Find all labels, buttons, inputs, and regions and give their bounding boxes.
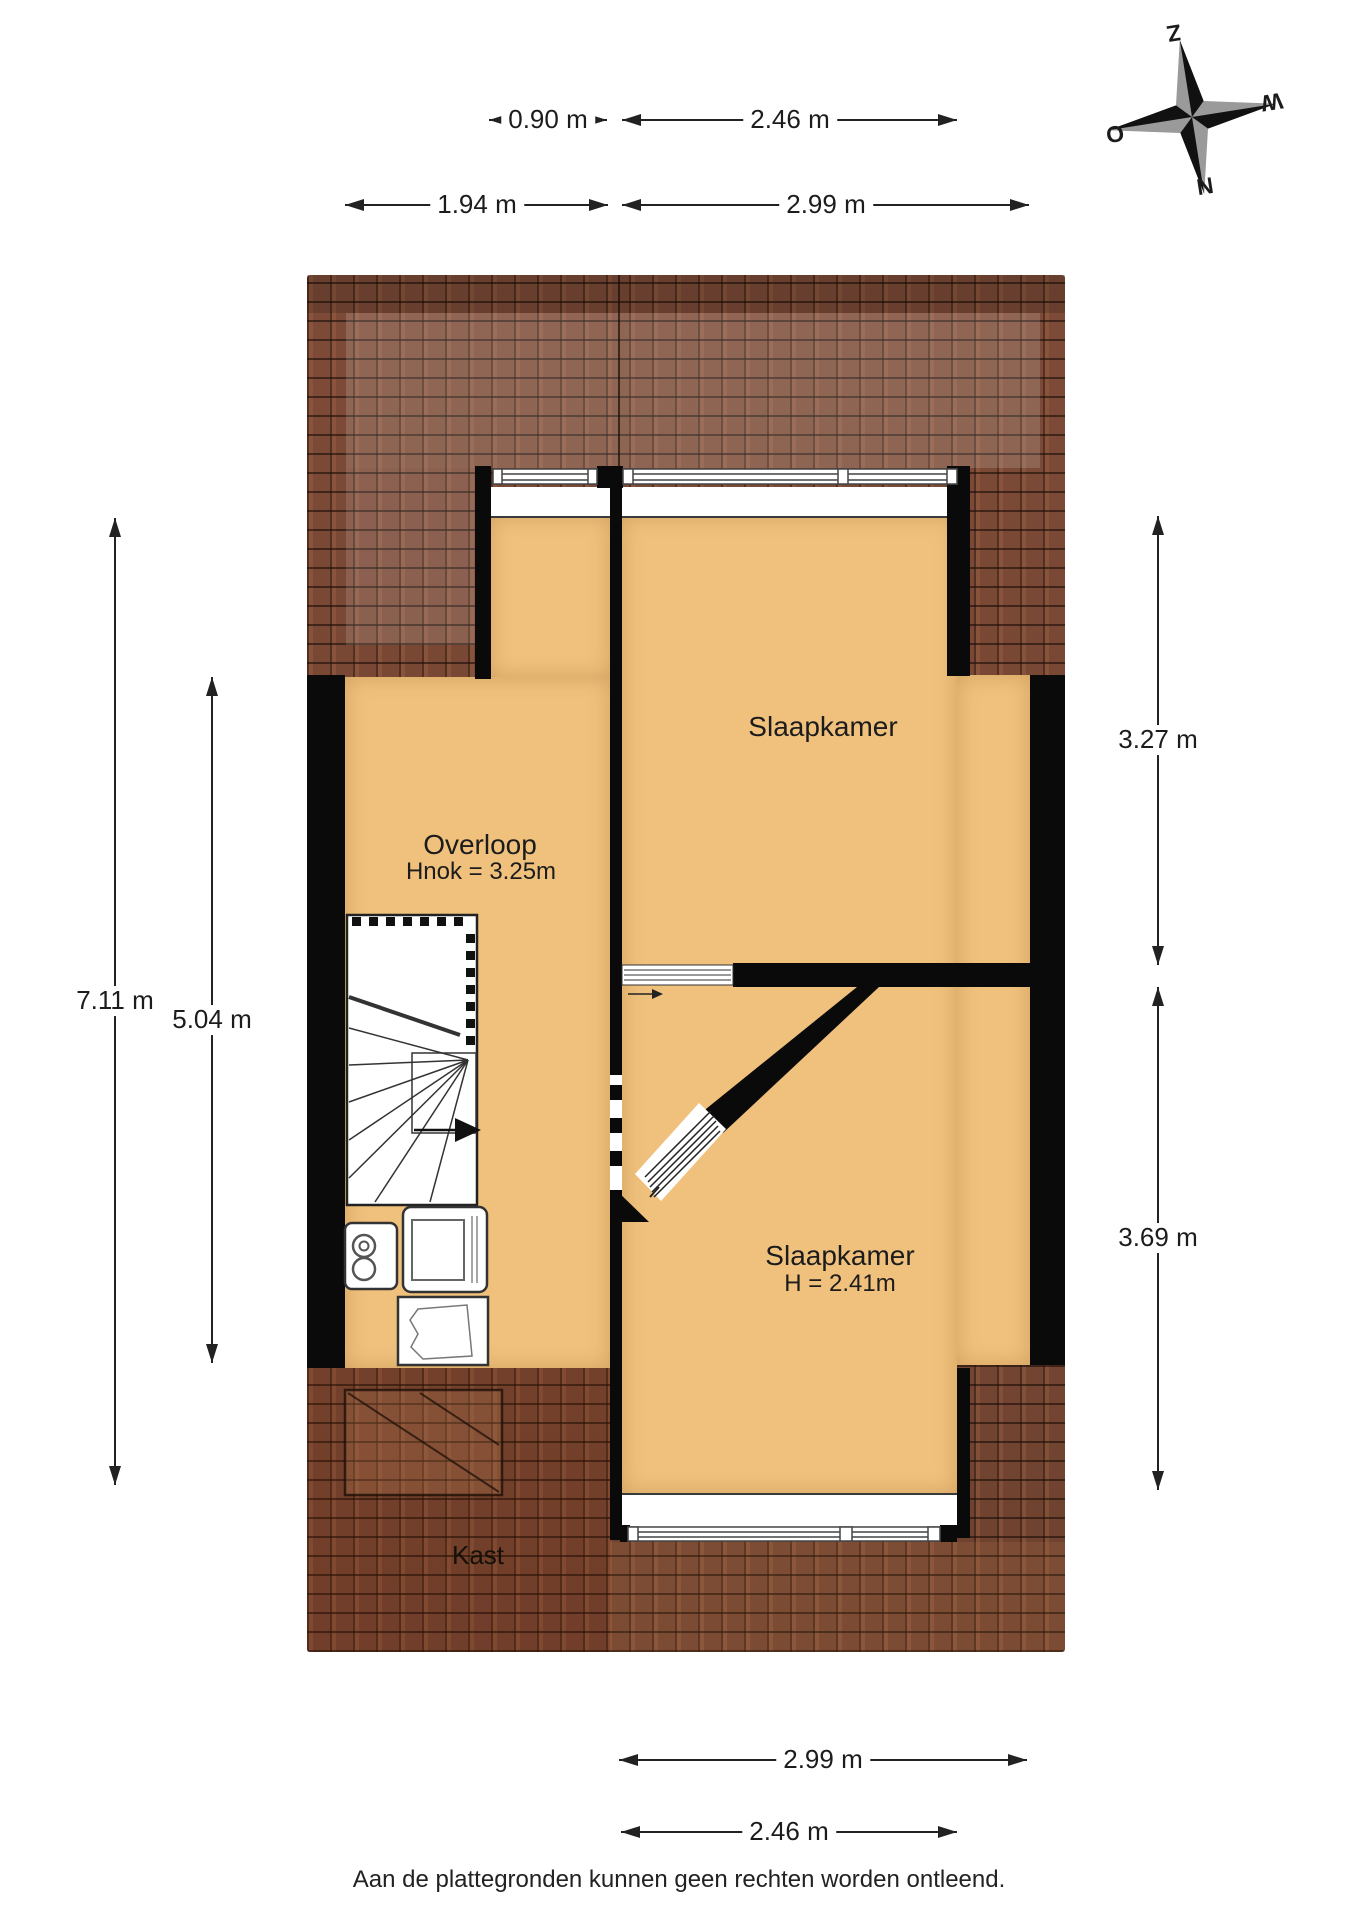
- dim-bottom-window: 2.46 m: [742, 1817, 836, 1847]
- dim-left-total: 7.11 m: [69, 986, 161, 1016]
- sink-fixture: [345, 1223, 397, 1289]
- wall-dormer-right: [947, 466, 970, 676]
- washing-machine: [403, 1207, 487, 1292]
- fixtures: [345, 1207, 488, 1365]
- wall-bedroom-divider: [733, 963, 1030, 987]
- label-bedroom-top: Slaapkamer: [748, 711, 897, 743]
- wall-exterior-left: [307, 675, 345, 1368]
- doors: [622, 965, 733, 1201]
- wall-lower-right: [957, 1368, 970, 1538]
- compass-label-west: W: [1259, 87, 1285, 117]
- dim-right-bedroom-top: 3.27 m: [1111, 725, 1205, 755]
- disclaimer-text: Aan de plattegronden kunnen geen rechten…: [353, 1866, 1006, 1894]
- door-bedroom-bottom: [635, 1103, 726, 1201]
- compass-rose: [1096, 27, 1288, 208]
- dim-top-landing-width: 1.94 m: [430, 190, 524, 220]
- floorplan-canvas: Slaapkamer Overloop Hnok = 3.25m Slaapka…: [0, 0, 1358, 1920]
- label-bedroom-bottom: Slaapkamer: [765, 1240, 914, 1272]
- wall-diagonal: [701, 987, 879, 1133]
- window-top-large: [623, 469, 957, 484]
- dim-left-landing: 5.04 m: [165, 1005, 259, 1035]
- window-top-small: [493, 469, 597, 484]
- dim-bottom-bedroom-width: 2.99 m: [776, 1745, 870, 1775]
- wall-exterior-right: [1030, 675, 1065, 1365]
- label-closet: Kast: [452, 1541, 504, 1571]
- laundry-basket: [398, 1297, 488, 1365]
- dim-top-dormer: 2.46 m: [743, 105, 837, 135]
- plan-lineart: [0, 0, 1358, 1920]
- dim-right-bedroom-bottom: 3.69 m: [1111, 1223, 1205, 1253]
- wall-center-upper: [610, 482, 622, 1075]
- label-bedroom-bottom-height: H = 2.41m: [784, 1270, 895, 1298]
- dim-top-window: 0.90 m: [501, 105, 595, 135]
- windows: [493, 469, 957, 1541]
- wall-bottom-window-right: [940, 1525, 957, 1542]
- dim-top-bedroom-width: 2.99 m: [779, 190, 873, 220]
- staircase: [347, 915, 481, 1205]
- closet-outline: [345, 1390, 502, 1495]
- window-bottom: [628, 1527, 940, 1541]
- label-landing: Overloop: [423, 829, 537, 861]
- label-landing-height: Hnok = 3.25m: [406, 858, 556, 886]
- wall-dormer-left: [475, 466, 491, 679]
- door-bedroom-top: [622, 965, 733, 999]
- wall-center-dashed-opening: [610, 1075, 622, 1190]
- wall-center-lower: [610, 1190, 622, 1540]
